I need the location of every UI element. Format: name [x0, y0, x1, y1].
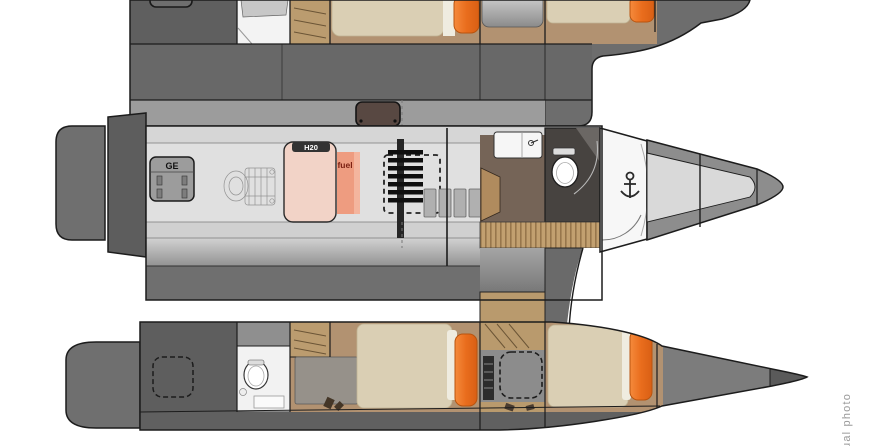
shower-tray — [254, 396, 284, 408]
deck-plan-drawing: GE H20 fuel — [0, 0, 890, 446]
generator-box: GE — [150, 157, 194, 201]
deck-row — [146, 222, 480, 238]
water-tank: H20 — [284, 142, 336, 222]
bed-duvet — [547, 0, 630, 23]
toilet-icon — [552, 157, 578, 187]
bed-pillow — [455, 334, 477, 406]
deck-plan-figure: GE H20 fuel — [0, 0, 890, 446]
deck-row — [146, 126, 480, 143]
sink-icon — [241, 0, 288, 17]
bathroom — [545, 128, 600, 222]
bed-sheet — [443, 0, 455, 36]
bed-duvet — [548, 325, 628, 407]
generator-label: GE — [165, 161, 178, 171]
deck-hatch-icon — [150, 0, 192, 7]
starboard-transom-step — [66, 342, 140, 428]
cabin-furniture — [482, 0, 543, 27]
coachroof-strip — [130, 100, 545, 126]
water-tank-label: H20 — [304, 143, 318, 152]
bed-pillow — [454, 0, 479, 33]
bathroom-top — [237, 322, 290, 346]
center-nacelle: GE H20 fuel — [56, 113, 783, 334]
companionway-deck — [480, 248, 545, 292]
stern-wedge — [108, 113, 146, 257]
wood-step — [481, 168, 500, 221]
sink-icon — [494, 132, 542, 158]
fuel-tank: fuel — [337, 152, 360, 214]
transom-step — [56, 126, 105, 240]
hull-side-band — [146, 266, 480, 300]
port-hull — [130, 0, 750, 126]
hull-bottom-band — [140, 412, 660, 432]
berth-gray — [295, 357, 358, 404]
fwd-cabin — [600, 128, 647, 252]
port-side-deck — [130, 44, 592, 100]
bed-duvet — [357, 324, 452, 408]
bed-pillow — [630, 330, 652, 400]
wood-slats-deck — [480, 222, 600, 248]
starboard-hull — [66, 322, 807, 432]
walkway — [146, 238, 480, 266]
hatch-hinge-dot — [393, 119, 396, 122]
deck-hatch-icon — [356, 102, 400, 126]
starboard-cabinet — [290, 322, 330, 357]
photo-credit-text: ual photo — [841, 393, 853, 446]
bed-pillow — [630, 0, 654, 22]
bed-duvet — [332, 0, 444, 36]
hatch-hinge-dot — [359, 119, 362, 122]
fuel-tank-label: fuel — [337, 160, 352, 170]
vent-grille-icon — [483, 356, 494, 400]
